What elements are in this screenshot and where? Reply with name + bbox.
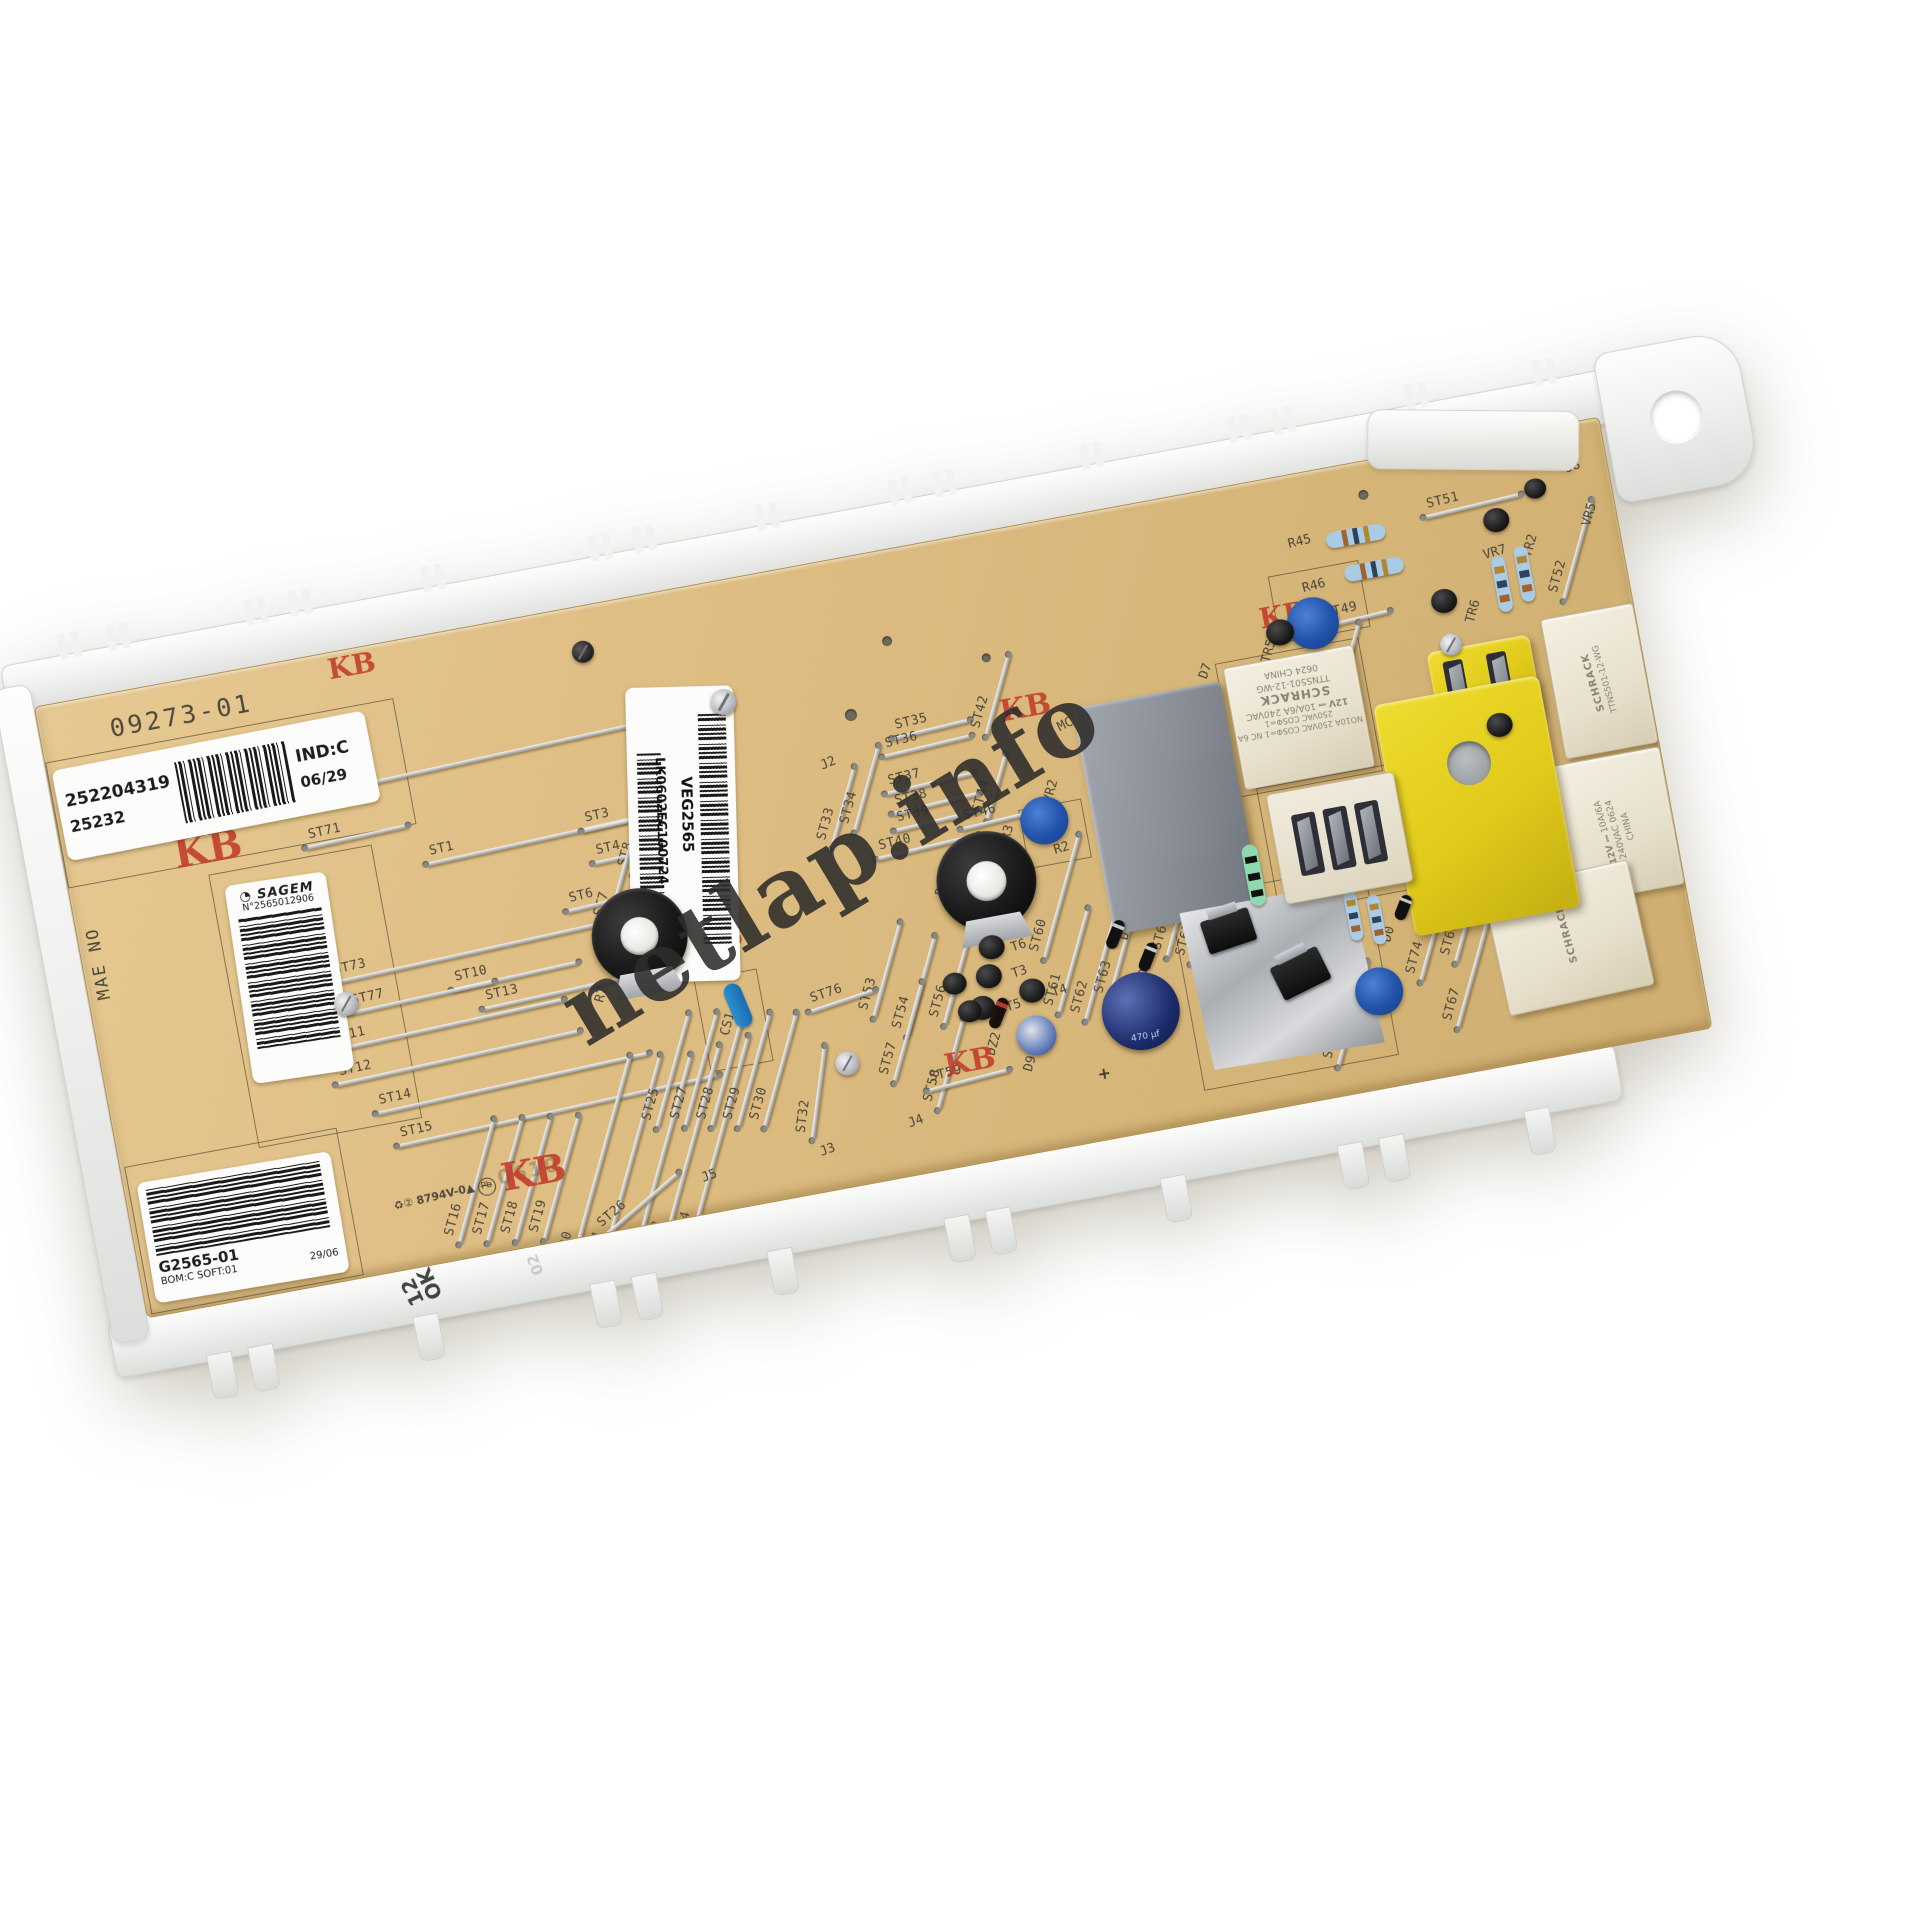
refdes-R45: R45 (1286, 532, 1312, 552)
transistor-t3 (974, 962, 1004, 990)
capacitor-value: 470 µf (1106, 1025, 1185, 1049)
polarity-mark: + (1096, 1063, 1113, 1084)
frame-clip (105, 621, 131, 651)
jumper-label: ST32 (793, 1099, 812, 1134)
diode-d1 (1137, 941, 1159, 973)
frame-foot (985, 1206, 1019, 1256)
screw (833, 1049, 861, 1077)
jumper-ST34: ST34 (853, 745, 881, 833)
refdes-J5: J5 (699, 1166, 719, 1186)
jumper-ST36: ST36 (882, 734, 972, 759)
frame-foot (206, 1351, 240, 1401)
frame-foot (412, 1312, 446, 1362)
jumper-ST32: ST32 (810, 1046, 826, 1141)
small-capacitor (1013, 1012, 1060, 1059)
screw-black (570, 639, 596, 665)
refdes-J4: J4 (906, 1112, 926, 1132)
jumper-label: ST15 (399, 1119, 435, 1141)
spade-connector (1265, 771, 1413, 905)
suppressor-hole (1443, 737, 1494, 788)
barcode (698, 713, 732, 944)
jumper-label: ST17 (470, 1200, 493, 1236)
frame-clip (1079, 441, 1105, 471)
pb-free-icon: Pb (476, 1176, 498, 1198)
jumper-label: ST76 (808, 981, 844, 1006)
product-photo: 12OK 02 09273-01 MAE NO ST72ST71ST1ST3ST… (0, 0, 1920, 1920)
jumper-label: ST18 (498, 1199, 521, 1235)
pot-rotor (617, 914, 662, 959)
frame-foot (1523, 1106, 1557, 1156)
refdes-D7: D7 (1196, 661, 1215, 681)
frame-clip (420, 563, 446, 593)
jumper-label: ST33 (814, 806, 837, 842)
jumper-label: ST57 (876, 1040, 899, 1076)
capacitor-tr6 (1429, 587, 1459, 615)
frame-clip (1403, 381, 1429, 411)
pot-rotor (963, 858, 1010, 905)
jumper-label: ST37 (886, 766, 922, 788)
capacitor (1522, 477, 1547, 501)
capacitor-tr2 (1481, 506, 1511, 534)
frame-stamp: 12OK (397, 1265, 445, 1311)
frame-mounting-tab (1592, 329, 1761, 505)
frame-clip (56, 631, 82, 661)
resistor (1490, 555, 1514, 613)
triangle-icon: ▲ (464, 1181, 475, 1196)
resistor-r45 (1325, 523, 1387, 550)
pot-bracket (612, 964, 684, 1001)
frame-foot (943, 1214, 977, 1264)
frame-bridge (1367, 409, 1580, 471)
board-assembly: 12OK 02 09273-01 MAE NO ST72ST71ST1ST3ST… (0, 328, 1838, 1432)
kb-stamp: KB (325, 645, 378, 686)
frame-foot (1160, 1174, 1194, 1224)
jumper-label: ST46 (962, 801, 998, 823)
mounting-hole (1646, 386, 1707, 447)
spade-terminal (1322, 805, 1357, 870)
relay-2: SCHRACK TTNS501-12-WG (1540, 603, 1658, 760)
recycle-icon: ♻② (393, 1196, 415, 1213)
refdes-D9: D9 (1021, 1054, 1040, 1073)
frame-clip (1531, 357, 1557, 387)
frame-clip (1226, 414, 1252, 444)
jumper-label: ST1 (427, 839, 455, 859)
refdes-VR5: VR5 (1579, 501, 1600, 528)
jumper-label: ST40 (876, 831, 912, 853)
jumper-label: ST6 (567, 885, 595, 905)
refdes-J2: J2 (818, 754, 838, 774)
jumper-label: ST16 (442, 1201, 465, 1237)
jumper-ST46: ST46 (960, 811, 1029, 831)
drill-hole (881, 635, 893, 647)
spade-terminal (1291, 811, 1326, 876)
jumper-label: ST27 (667, 1085, 690, 1121)
frame-foot (631, 1272, 665, 1322)
frame-clip (1270, 405, 1296, 435)
frame-clip (587, 532, 613, 562)
refdes-R7: R7 (592, 985, 611, 1004)
jumper-label: ST19 (527, 1198, 550, 1234)
drill-hole (981, 653, 991, 663)
spade-terminal (1354, 800, 1389, 865)
barcode (238, 906, 341, 1049)
jumper-label: ST42 (968, 694, 991, 730)
frame-clip (887, 477, 913, 507)
jumper-label: ST51 (1425, 489, 1461, 511)
jumper-ST14: ST14 (375, 1052, 649, 1117)
jumper-label: ST52 (1545, 558, 1568, 594)
barcode (174, 741, 296, 823)
frame-foot (1337, 1141, 1371, 1191)
frame-clip (931, 468, 957, 498)
frame-foot (589, 1279, 623, 1329)
kb-stamp: KB (997, 686, 1054, 730)
drill-hole (1358, 489, 1370, 501)
jumper-label: ST34 (837, 789, 860, 825)
frame-foot (766, 1247, 800, 1297)
frame-stamp-code: 02 (523, 1252, 547, 1278)
refdes-J3: J3 (818, 1140, 838, 1160)
pcb: 09273-01 MAE NO ST72ST71ST1ST3ST4ST8ST7S… (34, 417, 1713, 1319)
jumper-label: ST74 (1403, 939, 1426, 975)
refdes-TR6: TR6 (1463, 598, 1484, 625)
frame-clip (243, 596, 269, 626)
mae-no-silkscreen: MAE NO (82, 926, 115, 1002)
relay-1: NO10A 250VAC COSΦ=1 NC 6A 250VAC COSΦ=1 … (1223, 644, 1375, 790)
label-code: VEG2565 (677, 776, 697, 852)
drill-hole (844, 708, 858, 722)
frame-clip (754, 501, 780, 531)
jumper-label: ST36 (883, 729, 919, 751)
frame-foot (1378, 1133, 1412, 1183)
jumper-label: ST62 (1068, 979, 1091, 1015)
frame-clip (631, 524, 657, 554)
label-serial: LK0602EC100724 (652, 757, 670, 885)
frame-foot (247, 1343, 281, 1393)
jumper-label: ST67 (1440, 986, 1463, 1022)
frame-clip (287, 588, 313, 618)
